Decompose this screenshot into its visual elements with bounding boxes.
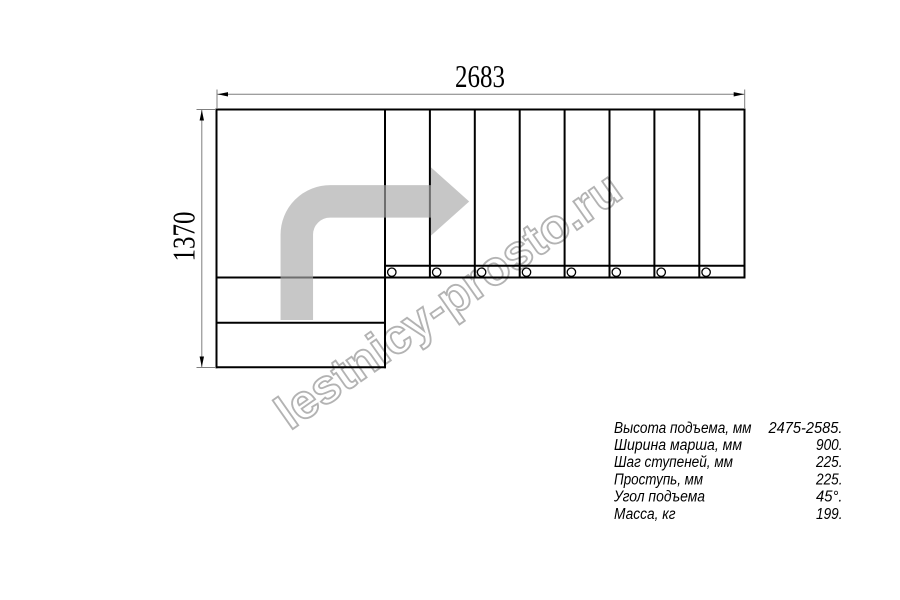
svg-text:1370: 1370 — [167, 212, 203, 262]
svg-text:225.: 225. — [815, 471, 842, 488]
svg-text:2683: 2683 — [455, 59, 505, 95]
svg-text:2475-2585.: 2475-2585. — [768, 420, 843, 437]
svg-text:Угол подъема: Угол подъема — [613, 489, 705, 506]
svg-text:225.: 225. — [815, 454, 842, 471]
svg-text:45°.: 45°. — [816, 489, 843, 506]
svg-text:199.: 199. — [816, 506, 843, 523]
svg-text:Высота подъема, мм: Высота подъема, мм — [614, 420, 752, 437]
svg-text:Ширина марша, мм: Ширина марша, мм — [614, 437, 742, 454]
svg-text:Шаг ступеней, мм: Шаг ступеней, мм — [614, 454, 733, 471]
svg-text:900.: 900. — [816, 437, 843, 454]
svg-text:Масса, кг: Масса, кг — [614, 506, 676, 523]
svg-text:Проступь, мм: Проступь, мм — [614, 471, 703, 488]
